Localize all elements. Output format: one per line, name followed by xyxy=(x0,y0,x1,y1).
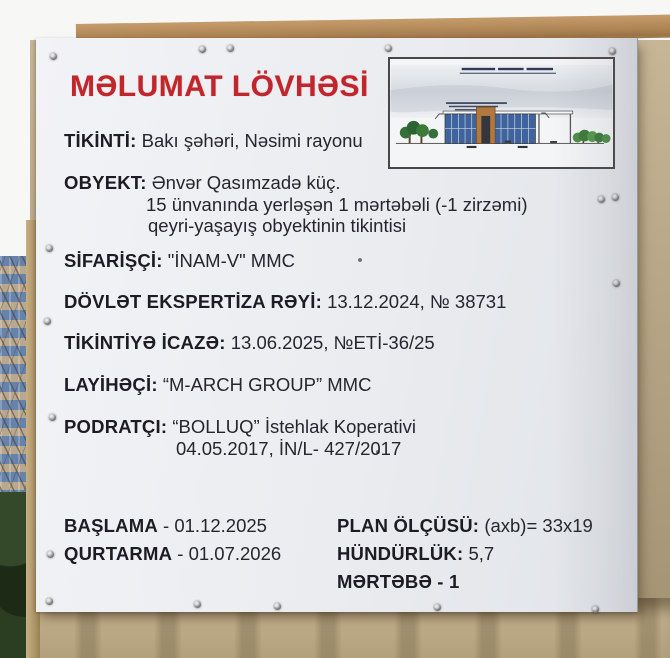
field-value: “M-ARCH GROUP” MMC xyxy=(163,374,372,395)
screw xyxy=(385,45,392,52)
field-row-ekspertiza: DÖVLƏT EKSPERTİZA RƏYİ: 13.12.2024, № 38… xyxy=(64,291,506,313)
field-row-obyekt-line3: qeyri-yaşayış obyektinin tikintisi xyxy=(148,215,406,237)
screw xyxy=(194,601,201,608)
screw xyxy=(199,46,206,53)
field-label: DÖVLƏT EKSPERTİZA RƏYİ: xyxy=(64,291,322,312)
field-value: 04.05.2017, İN/L- 427/2017 xyxy=(176,438,401,459)
field-value: Bakı şəhəri, Nəsimi rayonu xyxy=(142,130,363,151)
field-row-layiheci: LAYİHƏÇİ: “M-ARCH GROUP” MMC xyxy=(64,374,371,396)
screw xyxy=(44,318,51,325)
information-board: MƏLUMAT LÖVHƏSİ xyxy=(36,38,638,612)
screw xyxy=(434,604,441,611)
screw xyxy=(592,606,599,613)
building-elevation-drawing xyxy=(390,59,613,167)
field-value: - 01.12.2025 xyxy=(163,515,267,536)
field-row-podratci-line2: 04.05.2017, İN/L- 427/2017 xyxy=(176,438,401,460)
board-title: MƏLUMAT LÖVHƏSİ xyxy=(70,70,369,104)
screw xyxy=(612,194,619,201)
screw xyxy=(49,414,56,421)
field-row-sifarisci: SİFARİŞÇİ: "İNAM-V" MMC xyxy=(64,250,295,272)
field-value: “BOLLUQ” İstehlak Koperativi xyxy=(172,416,416,437)
field-row-icaze: TİKİNTİYƏ İCAZƏ: 13.06.2025, №ETİ-36/25 xyxy=(64,332,435,354)
field-value: - 1 xyxy=(437,571,459,592)
field-value: 5,7 xyxy=(468,543,494,564)
field-label: LAYİHƏÇİ: xyxy=(64,374,158,395)
schedule-row-qurtarma: QURTARMA - 01.07.2026 xyxy=(64,543,281,565)
screw xyxy=(613,280,620,287)
field-row-obyekt: OBYEKT: Ənvər Qasımzadə küç. xyxy=(64,172,340,194)
dirt-speck xyxy=(358,258,362,262)
field-row-tikinti: TİKİNTİ: Bakı şəhəri, Nəsimi rayonu xyxy=(64,130,363,152)
screw xyxy=(274,603,281,610)
field-value: "İNAM-V" MMC xyxy=(168,250,295,271)
field-label: HÜNDÜRLÜK: xyxy=(337,543,463,564)
field-value: 15 ünvanında yerləşən 1 mərtəbəli (-1 zi… xyxy=(146,194,527,215)
field-value: Ənvər Qasımzadə küç. xyxy=(152,172,341,193)
field-label: OBYEKT: xyxy=(64,172,147,193)
schedule-row-baslama: BAŞLAMA - 01.12.2025 xyxy=(64,515,267,537)
spec-row-plan: PLAN ÖLÇÜSÜ: (axb)= 33x19 xyxy=(337,515,593,537)
field-label: TİKİNTİYƏ İCAZƏ: xyxy=(64,332,226,353)
screw xyxy=(47,551,54,558)
field-value: (axb)= 33x19 xyxy=(484,515,593,536)
field-label: PLAN ÖLÇÜSÜ: xyxy=(337,515,479,536)
field-row-podratci: PODRATÇI: “BOLLUQ” İstehlak Koperativi xyxy=(64,416,416,438)
field-label: BAŞLAMA xyxy=(64,515,158,536)
picture-frame xyxy=(388,57,615,169)
spec-row-mertebe: MƏRTƏBƏ - 1 xyxy=(337,571,459,593)
field-label: SİFARİŞÇİ: xyxy=(64,250,163,271)
screw xyxy=(46,245,53,252)
photo-scene: MƏLUMAT LÖVHƏSİ xyxy=(0,0,670,658)
screw xyxy=(598,196,605,203)
field-label: PODRATÇI: xyxy=(64,416,167,437)
screw xyxy=(46,598,53,605)
spec-row-hundurluk: HÜNDÜRLÜK: 5,7 xyxy=(337,543,494,565)
field-value: 13.12.2024, № 38731 xyxy=(327,291,506,312)
field-value: qeyri-yaşayış obyektinin tikintisi xyxy=(148,215,406,236)
screw xyxy=(609,48,616,55)
field-value: 13.06.2025, №ETİ-36/25 xyxy=(231,332,435,353)
field-label: TİKİNTİ: xyxy=(64,130,137,151)
field-row-obyekt-line2: 15 ünvanında yerləşən 1 mərtəbəli (-1 zi… xyxy=(146,194,527,216)
field-value: - 01.07.2026 xyxy=(177,543,281,564)
field-label: QURTARMA xyxy=(64,543,172,564)
screw xyxy=(227,45,234,52)
field-label: MƏRTƏBƏ xyxy=(337,571,432,592)
screw xyxy=(50,53,57,60)
